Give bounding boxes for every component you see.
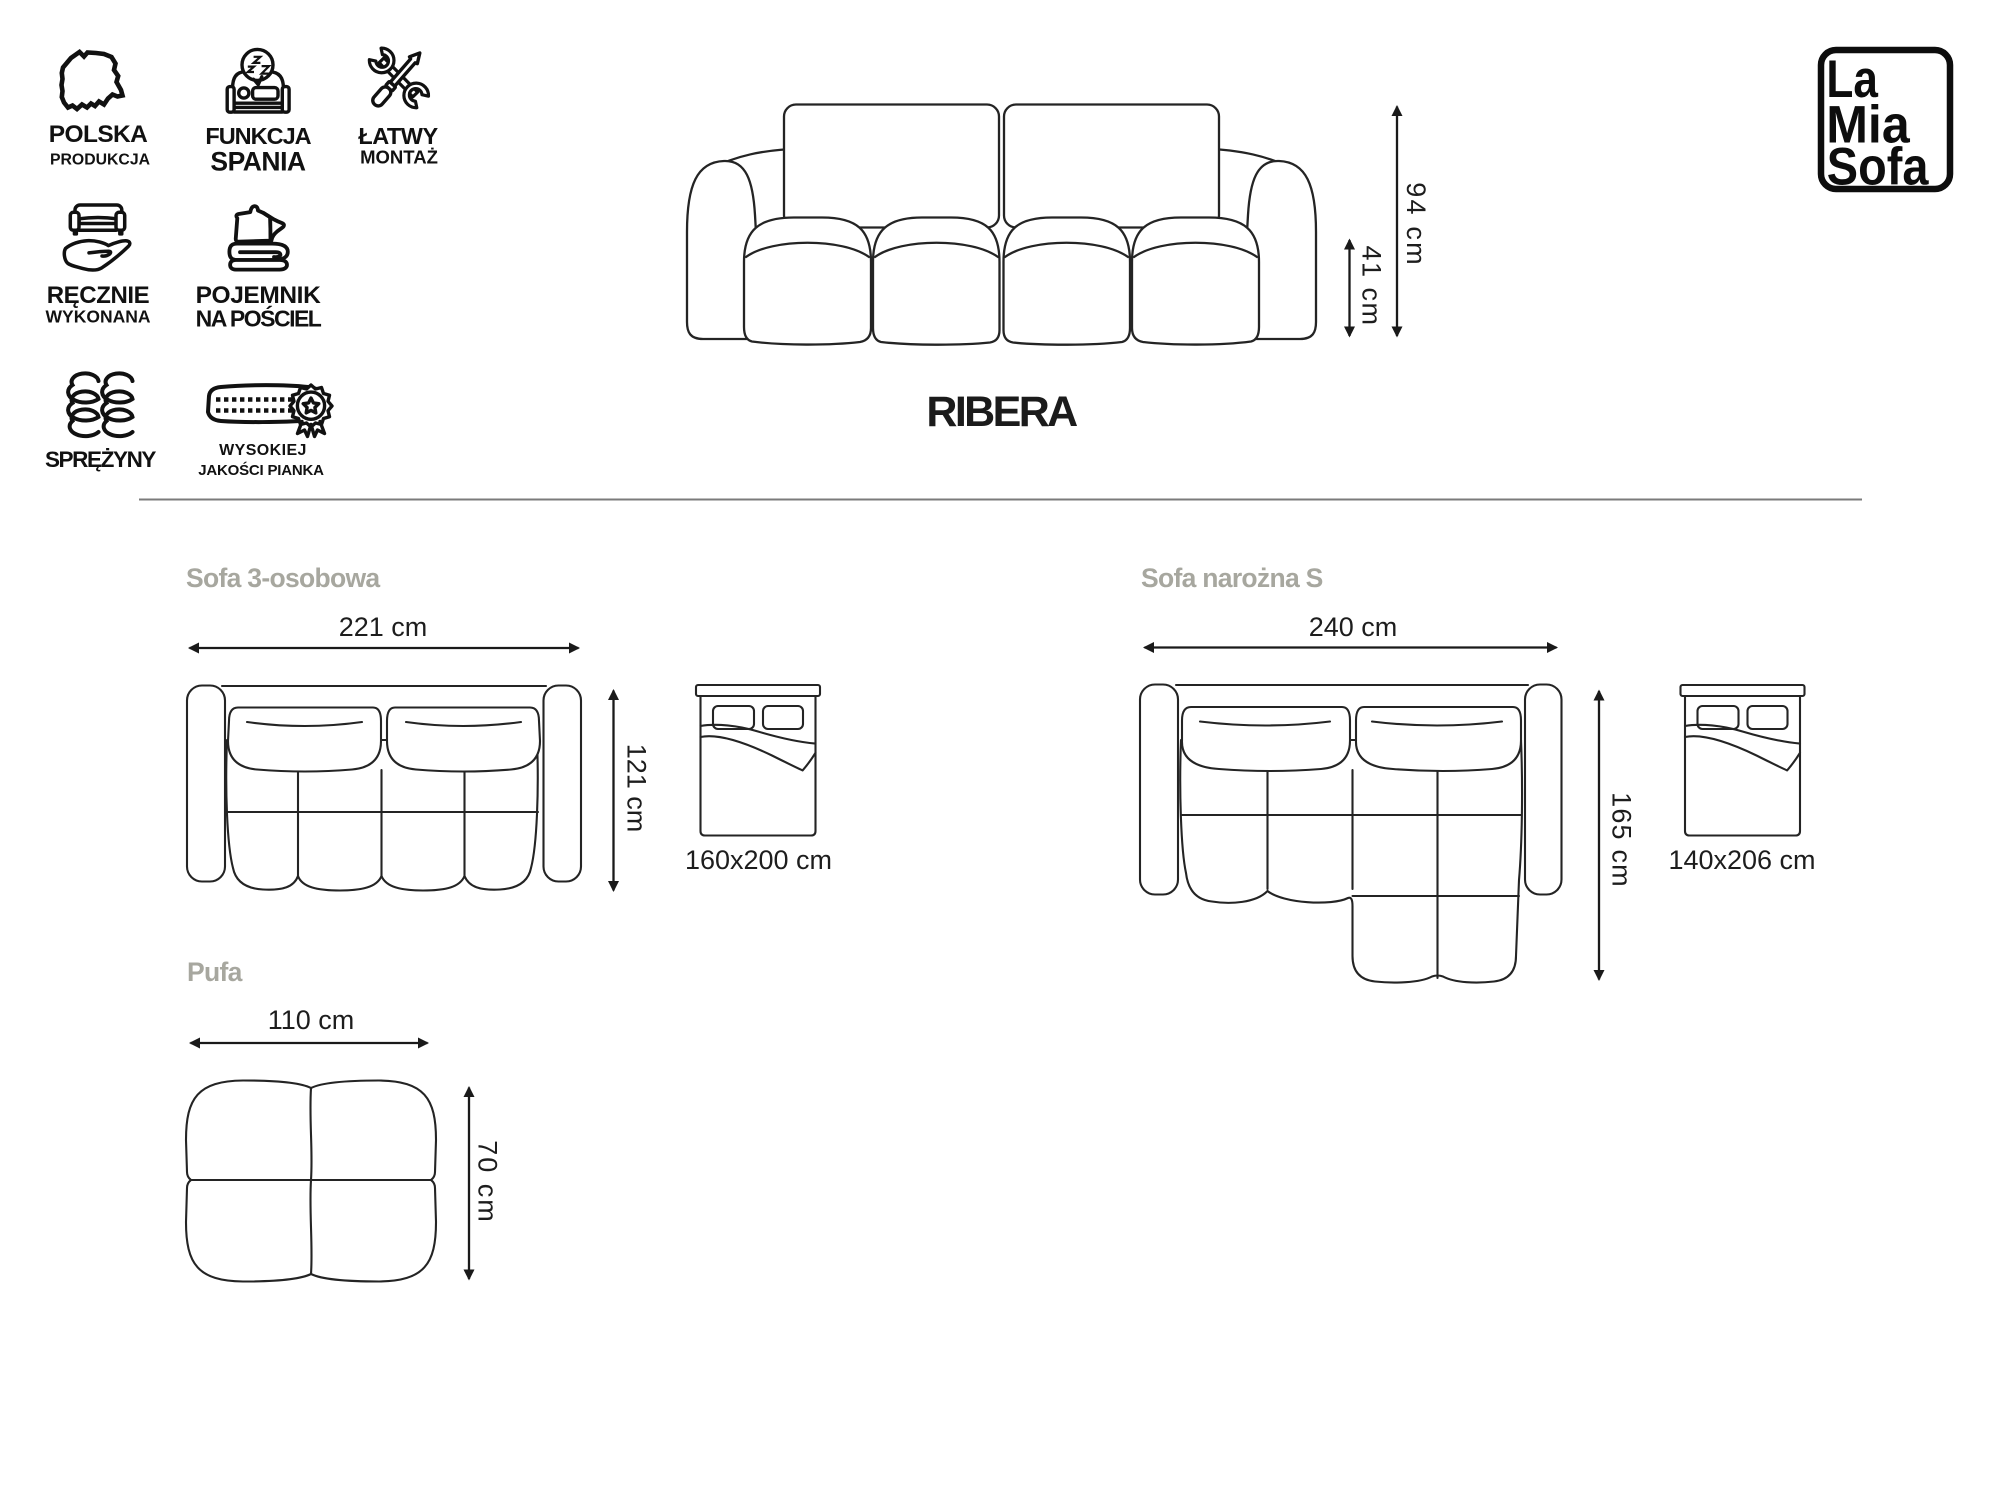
- svg-text:165 cm: 165 cm: [1607, 792, 1637, 888]
- svg-text:NA POŚCIEL: NA POŚCIEL: [196, 305, 322, 332]
- svg-text:Sofa 3-osobowa: Sofa 3-osobowa: [186, 563, 380, 593]
- svg-text:WYKONANA: WYKONANA: [46, 307, 151, 327]
- svg-text:41 cm: 41 cm: [1357, 245, 1387, 326]
- svg-text:221 cm: 221 cm: [339, 612, 428, 642]
- svg-text:140x206 cm: 140x206 cm: [1668, 845, 1815, 875]
- svg-text:FUNKCJA: FUNKCJA: [205, 123, 311, 149]
- svg-text:Pufa: Pufa: [187, 957, 243, 987]
- svg-text:MONTAŻ: MONTAŻ: [360, 147, 438, 168]
- svg-text:POLSKA: POLSKA: [49, 121, 148, 148]
- svg-text:ŁATWY: ŁATWY: [358, 123, 438, 149]
- svg-text:Sofa: Sofa: [1827, 137, 1930, 196]
- svg-text:160x200 cm: 160x200 cm: [685, 845, 832, 875]
- svg-text:94 cm: 94 cm: [1401, 182, 1431, 267]
- svg-text:SPANIA: SPANIA: [210, 147, 306, 177]
- svg-text:JAKOŚCI PIANKA: JAKOŚCI PIANKA: [198, 461, 324, 479]
- svg-text:Sofa narożna S: Sofa narożna S: [1141, 563, 1323, 593]
- svg-text:PRODUKCJA: PRODUKCJA: [50, 152, 150, 169]
- svg-text:RĘCZNIE: RĘCZNIE: [47, 282, 150, 309]
- svg-text:RIBERA: RIBERA: [926, 388, 1077, 436]
- svg-text:WYSOKIEJ: WYSOKIEJ: [219, 442, 307, 459]
- svg-text:110 cm: 110 cm: [268, 1005, 355, 1035]
- svg-text:SPRĘŻYNY: SPRĘŻYNY: [45, 447, 156, 472]
- svg-text:70 cm: 70 cm: [473, 1140, 503, 1224]
- svg-text:121 cm: 121 cm: [622, 744, 652, 833]
- svg-text:240 cm: 240 cm: [1309, 612, 1398, 642]
